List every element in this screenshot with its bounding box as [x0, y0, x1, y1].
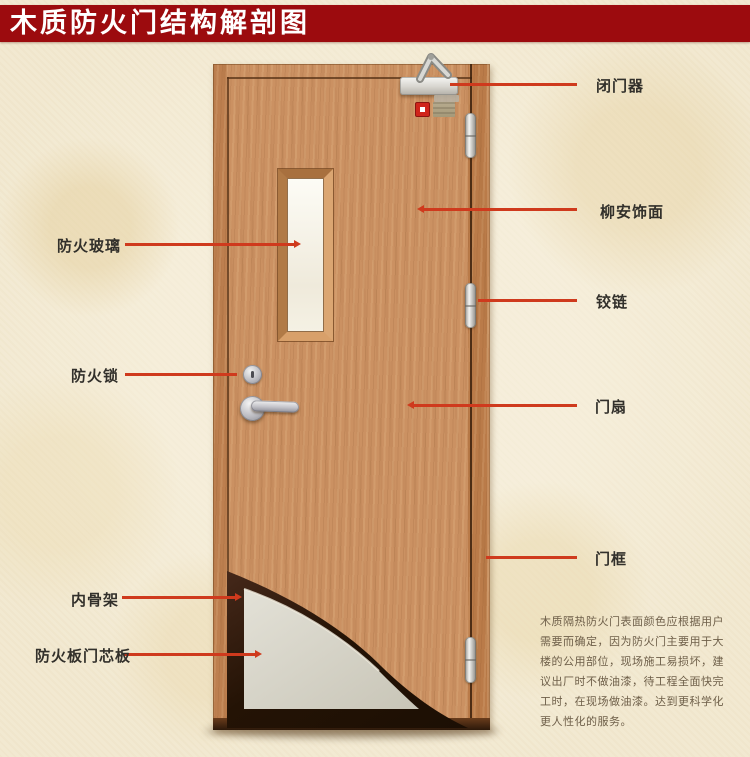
label-fire-lock: 防火锁 — [71, 365, 119, 386]
door-bottom-edge — [213, 718, 490, 730]
door-closer-bracket — [434, 95, 459, 102]
leader-hinge — [478, 299, 577, 302]
leader-door-frame — [486, 556, 577, 559]
label-door-frame: 门框 — [595, 548, 627, 569]
description-line: 楼的公用部位，现场施工易损坏，建 — [540, 652, 724, 672]
hinge-top — [465, 113, 476, 158]
description-paragraph: 木质隔热防火门表面颜色应根据用户 需要而确定，因为防火门主要用于大 楼的公用部位… — [540, 612, 724, 732]
label-lauan-veneer: 柳安饰面 — [600, 201, 664, 222]
leader-fire-glass — [125, 243, 295, 246]
description-line: 工时，在现场做油漆。达到更科学化 — [540, 692, 724, 712]
door-closer-body — [400, 77, 458, 95]
page-title: 木质防火门结构解剖图 — [0, 5, 310, 42]
leader-door-leaf — [413, 404, 577, 407]
label-hinge: 铰链 — [596, 291, 628, 312]
label-door-leaf: 门扇 — [595, 396, 627, 417]
fire-glass-window — [278, 169, 333, 341]
fire-door-diagram: 木质防火门结构解剖图 — [0, 0, 750, 757]
leader-lauan-veneer — [423, 208, 577, 211]
door-leaf-right-gap — [470, 64, 472, 718]
label-fire-glass: 防火玻璃 — [57, 235, 121, 256]
label-fire-core-board: 防火板门芯板 — [35, 645, 131, 666]
leader-door-closer — [450, 83, 577, 86]
description-line: 更人性化的服务。 — [540, 712, 724, 732]
description-line: 需要而确定，因为防火门主要用于大 — [540, 632, 724, 652]
hinge-bottom — [465, 637, 476, 683]
description-line: 木质隔热防火门表面颜色应根据用户 — [540, 612, 724, 632]
description-line: 议出厂时不做油漆，待工程全面快完 — [540, 672, 724, 692]
leader-fire-core-board — [124, 653, 256, 656]
door-illustration — [213, 64, 490, 730]
door-leaf-left-edge — [227, 77, 229, 718]
handle-lever — [251, 400, 299, 413]
title-banner: 木质防火门结构解剖图 — [0, 5, 750, 42]
label-inner-skeleton: 内骨架 — [71, 589, 119, 610]
door-info-plate — [433, 102, 455, 117]
label-door-closer: 闭门器 — [596, 75, 644, 96]
leader-inner-skeleton — [122, 596, 236, 599]
door-frame-outer-edge — [487, 64, 490, 730]
hinge-middle — [465, 283, 476, 328]
fire-lock-cylinder — [243, 365, 262, 384]
leader-fire-lock — [125, 373, 237, 376]
fire-rating-badge — [415, 102, 430, 117]
